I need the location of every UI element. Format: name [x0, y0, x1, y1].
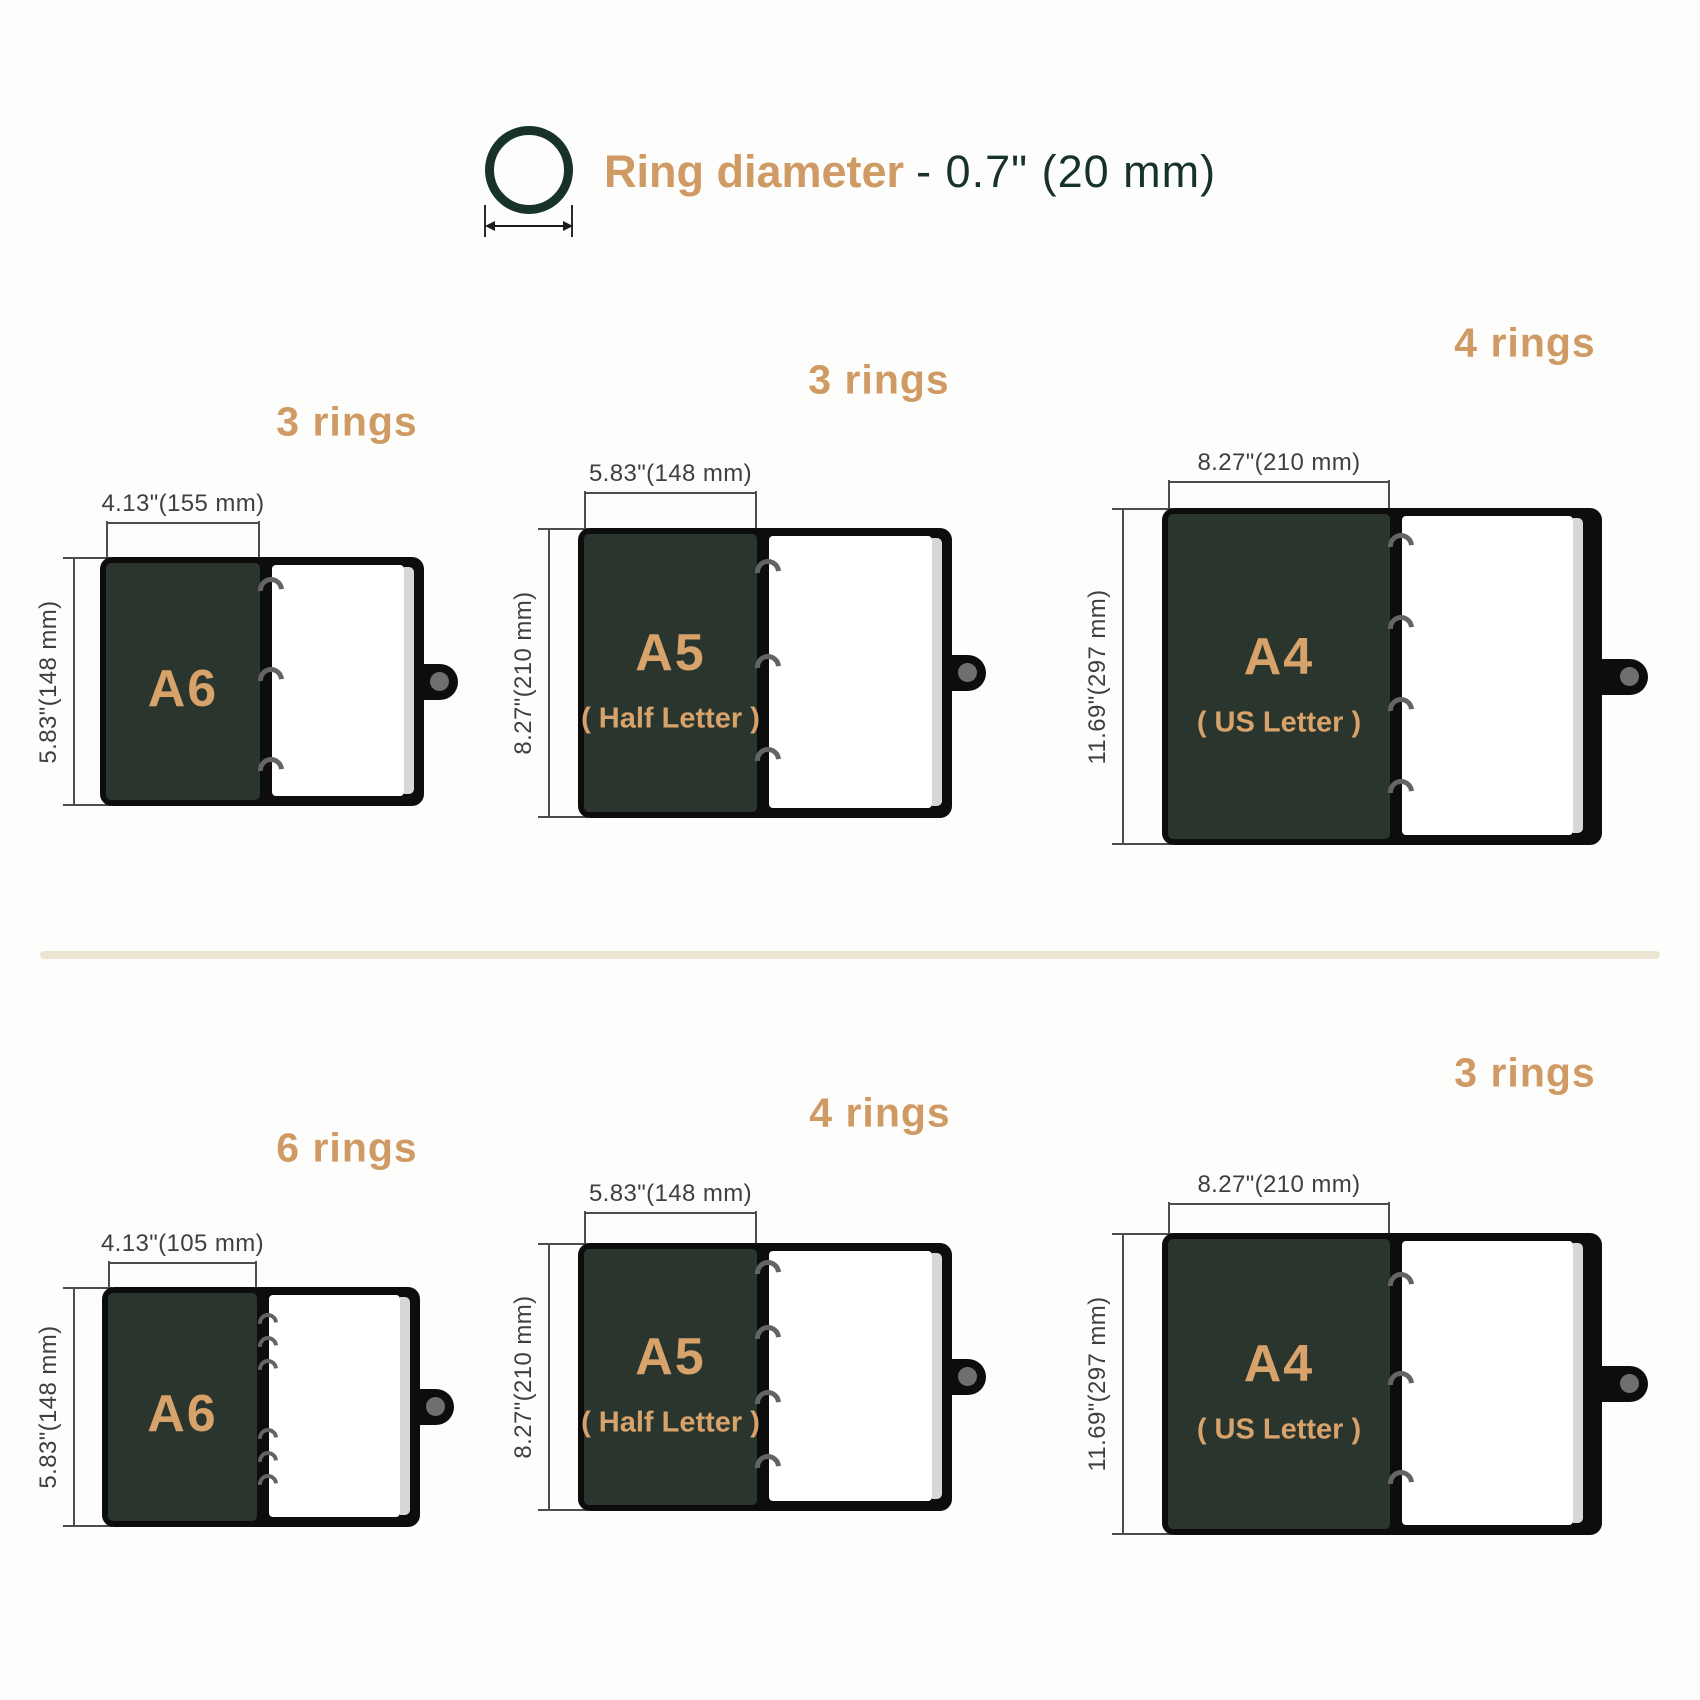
page-title-accent: Ring diameter [604, 146, 904, 197]
paper-size-subtitle: ( US Letter ) [1197, 706, 1361, 739]
infographic-canvas: Ring diameter- 0.7" (20 mm) 3 rings 4.13… [0, 0, 1700, 1700]
binder-ring-icon [253, 662, 290, 699]
clasp-tab [1600, 1366, 1648, 1402]
section-divider [40, 951, 1660, 959]
width-dimension-label: 5.83"(148 mm) [589, 460, 752, 488]
binder-ring-icon [253, 752, 290, 789]
ring-count-label: 6 rings [276, 1125, 417, 1172]
page-title: Ring diameter- 0.7" (20 mm) [604, 146, 1216, 198]
binder-cover [578, 528, 952, 818]
ring-count-label: 3 rings [808, 357, 949, 404]
width-dimension-line [1168, 1203, 1390, 1205]
binder-page [269, 1295, 400, 1517]
clasp-tab [422, 664, 458, 700]
binder-cover [102, 1287, 420, 1527]
binder-ring-icon [254, 1355, 282, 1383]
binder-ring-icon [750, 554, 787, 591]
binder-ring-icon [750, 649, 787, 686]
binder-ring-icon [1383, 774, 1420, 811]
height-dimension-line [1122, 1233, 1124, 1535]
binder-ring-icon [1383, 692, 1420, 729]
page-stack-edge [932, 1253, 942, 1499]
binder-page [1402, 1241, 1573, 1525]
page-title-value: - 0.7" (20 mm) [916, 146, 1216, 197]
binder-ring-icon [254, 1424, 282, 1452]
ring-count-label: 3 rings [1454, 1050, 1595, 1097]
width-dimension-label: 5.83"(148 mm) [589, 1180, 752, 1208]
ring-count-label: 4 rings [1454, 320, 1595, 367]
binder-cover [578, 1243, 952, 1511]
binder-ring-icon [1383, 1366, 1420, 1403]
page-stack-edge [404, 567, 414, 794]
binder-front-panel [584, 1249, 757, 1505]
height-dimension-label: 11.69"(297 mm) [1084, 1296, 1112, 1471]
binder-front-panel [108, 1293, 257, 1521]
width-dimension-line [106, 522, 260, 524]
page-stack-edge [400, 1297, 410, 1515]
binder-cover [1162, 508, 1602, 845]
binder: 3 rings 5.83"(148 mm) 8.27"(210 mm) A5 (… [0, 0, 1700, 1700]
binder-ring-icon [750, 1255, 787, 1292]
width-dimension-line [1168, 481, 1390, 483]
binder-front-panel [584, 534, 757, 812]
page-stack-edge [1573, 518, 1583, 833]
clasp-button [958, 1367, 977, 1386]
binder: 3 rings 8.27"(210 mm) 11.69"(297 mm) A4 … [0, 0, 1700, 1700]
clasp-button [1620, 667, 1639, 686]
height-dimension-line [548, 528, 550, 818]
binder-ring-icon [750, 742, 787, 779]
height-dimension-label: 8.27"(210 mm) [510, 1295, 538, 1458]
binder-ring-icon [750, 1385, 787, 1422]
binder-cover [100, 557, 424, 806]
binder-ring-icon [254, 1309, 282, 1337]
paper-size-label: A4 [1244, 627, 1314, 687]
height-dimension-label: 5.83"(148 mm) [35, 1325, 63, 1488]
binder-ring-icon [254, 1332, 282, 1360]
binder-ring-icon [750, 1449, 787, 1486]
clasp-tab [1600, 659, 1648, 695]
width-dimension-line [584, 492, 757, 494]
clasp-tab [950, 1359, 986, 1395]
page-stack-edge [1573, 1243, 1583, 1523]
binder-front-panel [1168, 1239, 1390, 1529]
paper-size-label: A6 [147, 1384, 217, 1444]
binder-page [1402, 516, 1573, 835]
binder-ring-icon [1383, 1267, 1420, 1304]
binder-front-panel [106, 563, 260, 800]
height-dimension-line [1122, 508, 1124, 845]
binder-ring-icon [253, 572, 290, 609]
width-dimension-line [108, 1262, 257, 1264]
clasp-tab [950, 655, 986, 691]
clasp-button [1620, 1374, 1639, 1393]
binder: 4 rings 8.27"(210 mm) 11.69"(297 mm) A4 … [0, 0, 1700, 1700]
binder-ring-icon [750, 1320, 787, 1357]
binder-ring-icon [254, 1470, 282, 1498]
binder-ring-icon [1383, 1465, 1420, 1502]
height-dimension-label: 11.69"(297 mm) [1084, 589, 1112, 764]
paper-size-label: A5 [635, 1327, 705, 1387]
height-dimension-line [73, 1287, 75, 1527]
paper-size-label: A4 [1244, 1334, 1314, 1394]
binder-ring-icon [1383, 528, 1420, 565]
clasp-button [426, 1397, 445, 1416]
ring-count-label: 3 rings [276, 399, 417, 446]
paper-size-label: A5 [635, 623, 705, 683]
binder: 3 rings 4.13"(155 mm) 5.83"(148 mm) A6 [0, 0, 1700, 1700]
height-dimension-line [73, 557, 75, 806]
paper-size-subtitle: ( US Letter ) [1197, 1414, 1361, 1447]
diameter-arrow-icon [487, 225, 571, 227]
width-dimension-label: 8.27"(210 mm) [1197, 449, 1360, 477]
width-dimension-label: 4.13"(105 mm) [101, 1230, 264, 1258]
binder: 6 rings 4.13"(105 mm) 5.83"(148 mm) A6 [0, 0, 1700, 1700]
paper-size-subtitle: ( Half Letter ) [581, 1407, 760, 1440]
clasp-button [430, 672, 449, 691]
clasp-button [958, 663, 977, 682]
clasp-tab [418, 1389, 454, 1425]
binder-page [769, 536, 932, 808]
binder-cover [1162, 1233, 1602, 1535]
width-dimension-label: 8.27"(210 mm) [1197, 1171, 1360, 1199]
width-dimension-line [584, 1212, 757, 1214]
binder-page [769, 1251, 932, 1501]
height-dimension-label: 8.27"(210 mm) [510, 591, 538, 754]
binder-ring-icon [1383, 610, 1420, 647]
paper-size-label: A6 [148, 659, 218, 719]
width-dimension-label: 4.13"(155 mm) [101, 490, 264, 518]
ring-icon [485, 126, 573, 214]
height-dimension-line [548, 1243, 550, 1511]
binder-page [272, 565, 404, 796]
height-dimension-label: 5.83"(148 mm) [35, 600, 63, 763]
paper-size-subtitle: ( Half Letter ) [581, 703, 760, 736]
page-stack-edge [932, 538, 942, 806]
binder: 4 rings 5.83"(148 mm) 8.27"(210 mm) A5 (… [0, 0, 1700, 1700]
ring-count-label: 4 rings [809, 1090, 950, 1137]
binder-ring-icon [254, 1447, 282, 1475]
binder-front-panel [1168, 514, 1390, 839]
